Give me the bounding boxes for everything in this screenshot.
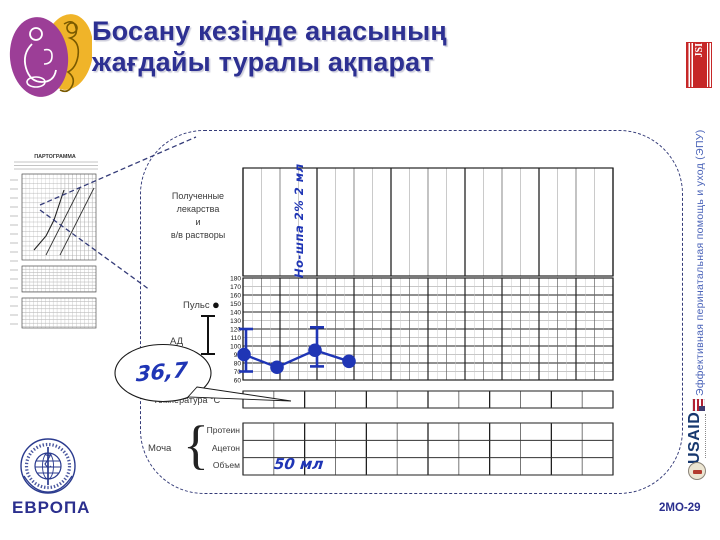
svg-text:80: 80 — [234, 360, 242, 367]
drug-annotation: Но-шпа 2% 2 мл — [292, 178, 305, 278]
urine-row-label-volume: Объем — [194, 460, 240, 470]
jsi-label-band: JSI — [693, 43, 707, 87]
svg-text:110: 110 — [231, 335, 242, 342]
svg-text:180: 180 — [230, 275, 241, 282]
thumbnail-title: ПАРТОГРАММА — [34, 154, 76, 160]
usaid-tagline — [705, 414, 706, 458]
temperature-value: 36,7 — [135, 358, 188, 387]
title-line-1: Босану кезінде анасының — [92, 16, 447, 47]
urine-row-label-acetone: Ацетон — [194, 443, 240, 453]
jsi-label: JSI — [693, 43, 707, 57]
urine-label: Моча — [148, 443, 171, 454]
slide-root: { "slide": { "title_line1": "Босану кезі… — [0, 0, 720, 540]
bp-symbol-icon — [199, 314, 217, 356]
urine-row-label-protein: Протеин — [194, 425, 240, 435]
title-line-2: жағдайы туралы ақпарат — [92, 47, 447, 78]
svg-text:150: 150 — [230, 301, 241, 308]
mother-baby-logo-icon — [6, 6, 92, 100]
bp-label: АД — [170, 336, 183, 347]
svg-text:170: 170 — [230, 284, 241, 291]
pulse-dot-icon: ● — [212, 297, 220, 312]
drugs-label: Полученные лекарства и в/в растворы — [158, 190, 238, 242]
urine-volume-value: 50 мл — [273, 455, 324, 473]
pulse-label: Пульс — [183, 300, 210, 311]
svg-text:60: 60 — [234, 377, 242, 384]
jsi-logo: JSI — [686, 42, 712, 88]
svg-text:160: 160 — [230, 292, 241, 299]
who-logo-icon — [16, 436, 80, 500]
page-title: Босану кезінде анасының жағдайы туралы а… — [92, 16, 447, 79]
svg-text:130: 130 — [230, 318, 241, 325]
who-region-label: ЕВРОПА — [12, 498, 90, 518]
temperature-label: Температура °С — [153, 395, 220, 405]
usaid-seal-icon — [688, 462, 706, 480]
svg-text:140: 140 — [230, 309, 241, 316]
partograph-thumbnail: ПАРТОГРАММА — [8, 150, 102, 336]
slide-code: 2МО-29 — [659, 502, 701, 514]
side-program-text: Эффективная перинатальная помощь и уход … — [694, 112, 706, 396]
usaid-label: USAID — [686, 410, 704, 464]
